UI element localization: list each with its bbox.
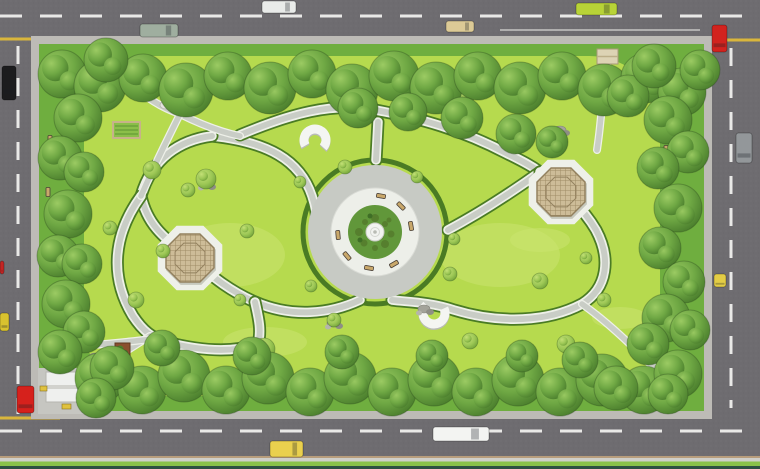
- vehicle-taxi-yellow-bottom: [270, 441, 303, 457]
- plaza-plant: [372, 245, 378, 251]
- entrance-steps-west-lower: [113, 122, 140, 138]
- car-beige-top-windshield: [465, 23, 469, 31]
- tree-canopy-lobe: [476, 73, 495, 92]
- shrub: [295, 177, 301, 183]
- shrub: [412, 172, 418, 178]
- taxi-yellow-bottom-body: [270, 441, 303, 457]
- car-yellow-left-edge-body: [0, 313, 9, 331]
- tree-canopy-lobe: [390, 389, 409, 408]
- tree-canopy-lobe: [558, 389, 577, 408]
- car-yellow-right-body: [714, 274, 726, 287]
- tree-canopy-lobe: [652, 63, 670, 81]
- car-red-topright-body: [712, 25, 727, 52]
- tree-canopy-lobe: [110, 365, 128, 383]
- shrub: [464, 335, 472, 343]
- vehicle-car-yellow-left-edge: [0, 313, 9, 331]
- tree-canopy-lobe: [614, 385, 632, 403]
- vehicle-van-gray-right: [736, 133, 752, 163]
- tree-canopy-lobe: [517, 85, 538, 106]
- car-white-top-body: [262, 1, 296, 13]
- car-red-topright-windshield: [714, 43, 726, 47]
- vehicle-truck-sage-top: [140, 24, 178, 37]
- shrub: [581, 253, 587, 259]
- vehicle-bus-lime-top: [576, 3, 617, 15]
- tree-canopy-lobe: [76, 115, 95, 134]
- tree-canopy-lobe: [267, 85, 288, 106]
- pergola-west: [158, 226, 223, 291]
- bench: [46, 188, 50, 197]
- tree-canopy-lobe: [431, 377, 452, 398]
- central-plaza: [308, 165, 442, 299]
- tree-canopy-lobe: [474, 389, 493, 408]
- walking-path: [376, 122, 378, 160]
- plaza-plant: [368, 214, 373, 219]
- tree-canopy-lobe: [578, 358, 592, 372]
- shrub: [198, 171, 208, 181]
- plaza-plant: [387, 218, 392, 223]
- tree-canopy-lobe: [80, 262, 96, 278]
- tree-canopy-lobe: [698, 68, 714, 84]
- tree-canopy-lobe: [550, 140, 563, 153]
- tree-canopy-lobe: [141, 75, 160, 94]
- tree-canopy-lobe: [82, 329, 99, 346]
- shrub: [598, 294, 605, 301]
- tree-canopy-lobe: [66, 211, 85, 230]
- rock: [426, 309, 434, 315]
- bus-white-bottom-windshield: [471, 429, 479, 440]
- plaza-plant: [382, 221, 388, 227]
- tree-canopy-lobe: [82, 170, 98, 186]
- van-gray-right-windshield: [738, 153, 751, 157]
- shrub: [145, 163, 154, 172]
- tree-canopy-lobe: [308, 389, 327, 408]
- pergola-trellis-roof: [166, 234, 214, 282]
- plaza-plant: [362, 219, 368, 225]
- bus-lime-top-windshield: [604, 5, 610, 14]
- pavilion-roof-ridge: [46, 385, 78, 389]
- plaza-plant: [355, 228, 363, 236]
- tree-canopy-lobe: [515, 377, 536, 398]
- vehicle-car-yellow-right: [714, 274, 726, 287]
- tree-canopy-lobe: [58, 349, 76, 367]
- tree-canopy-lobe: [250, 354, 265, 369]
- fountain-center: [373, 230, 377, 234]
- truck-black-left-body: [2, 66, 16, 100]
- tree-canopy-lobe: [666, 392, 682, 408]
- tree-canopy-lobe: [265, 375, 286, 396]
- rock: [416, 311, 422, 316]
- car-red-left-body: [17, 386, 34, 413]
- tree-canopy-lobe: [97, 83, 118, 104]
- park-aerial-render: [0, 0, 760, 469]
- bench: [336, 230, 341, 239]
- shrub: [306, 281, 312, 287]
- shrub: [328, 314, 335, 321]
- car-red-sliver-left-windshield: [2, 270, 3, 272]
- tree-canopy-lobe: [676, 205, 695, 224]
- car-red-sliver-left-body: [0, 261, 4, 274]
- tree-canopy-lobe: [656, 165, 673, 182]
- tree-canopy-lobe: [430, 354, 443, 367]
- pergola-east: [529, 160, 594, 225]
- vehicle-car-red-sliver-left: [0, 261, 4, 274]
- tree-canopy-lobe: [94, 396, 110, 412]
- shrub: [235, 295, 241, 301]
- shrub: [241, 225, 248, 232]
- tree-canopy-lobe: [356, 106, 372, 122]
- tree-canopy-lobe: [560, 73, 579, 92]
- shrub: [130, 294, 138, 302]
- plaza-plant: [388, 231, 395, 238]
- vehicle-car-beige-top: [446, 21, 474, 32]
- curb-line-bottom: [0, 456, 760, 458]
- plaza-plant: [381, 240, 389, 248]
- shrub: [157, 245, 164, 252]
- car-red-left-windshield: [19, 404, 33, 408]
- grass-strip-bottom: [0, 462, 760, 467]
- tree-canopy-lobe: [340, 350, 354, 364]
- car-yellow-left-edge-windshield: [2, 325, 8, 328]
- yellow-bench: [40, 386, 47, 391]
- pergola-trellis-roof: [537, 168, 585, 216]
- truck-sage-top-body: [140, 24, 178, 37]
- lawn-patch: [510, 228, 570, 252]
- yellow-bench: [62, 404, 71, 409]
- tree-canopy-lobe: [392, 73, 412, 93]
- tree-canopy-lobe: [658, 245, 675, 262]
- tree-canopy-lobe: [140, 387, 159, 406]
- shrub: [182, 184, 189, 191]
- truck-black-left-windshield: [4, 89, 15, 94]
- plaza-plant: [358, 238, 363, 243]
- tree-canopy-lobe: [514, 132, 530, 148]
- vehicle-truck-black-left: [2, 66, 16, 100]
- shrub: [104, 222, 111, 229]
- tree-canopy-lobe: [686, 149, 703, 166]
- car-beige-top-body: [446, 21, 474, 32]
- sidewalk-strip-bottom: [0, 458, 760, 462]
- tree-canopy-lobe: [181, 373, 202, 394]
- taxi-yellow-bottom-windshield: [292, 443, 297, 456]
- bus-lime-top-body: [576, 3, 617, 15]
- vehicle-car-red-topright: [712, 25, 727, 52]
- tree-canopy-lobe: [406, 110, 421, 125]
- park-plan-canvas: [0, 0, 760, 469]
- tree-canopy-lobe: [688, 328, 704, 344]
- truck-sage-top-windshield: [166, 26, 171, 36]
- tree-canopy-lobe: [520, 354, 533, 367]
- tree-canopy-lobe: [183, 87, 205, 109]
- tree-canopy-lobe: [224, 387, 243, 406]
- car-yellow-right-windshield: [716, 283, 725, 285]
- tree-canopy-lobe: [226, 73, 245, 92]
- vehicle-bus-white-bottom: [433, 427, 489, 441]
- tree-canopy-lobe: [682, 279, 699, 296]
- tree-canopy-lobe: [347, 375, 368, 396]
- tree-canopy-lobe: [646, 341, 663, 358]
- shrub: [449, 234, 455, 240]
- tree-canopy-lobe: [160, 346, 174, 360]
- tree-canopy-lobe: [626, 93, 643, 110]
- van-gray-right-body: [736, 133, 752, 163]
- shrub: [534, 275, 542, 283]
- shrub: [339, 161, 346, 168]
- tree-canopy-lobe: [460, 115, 477, 132]
- shrub: [559, 337, 568, 346]
- bus-white-bottom-body: [433, 427, 489, 441]
- vehicle-car-white-top: [262, 1, 296, 13]
- car-white-top-windshield: [285, 3, 290, 12]
- shrub: [444, 268, 451, 275]
- tree-canopy-lobe: [104, 57, 122, 75]
- vehicle-car-red-left: [17, 386, 34, 413]
